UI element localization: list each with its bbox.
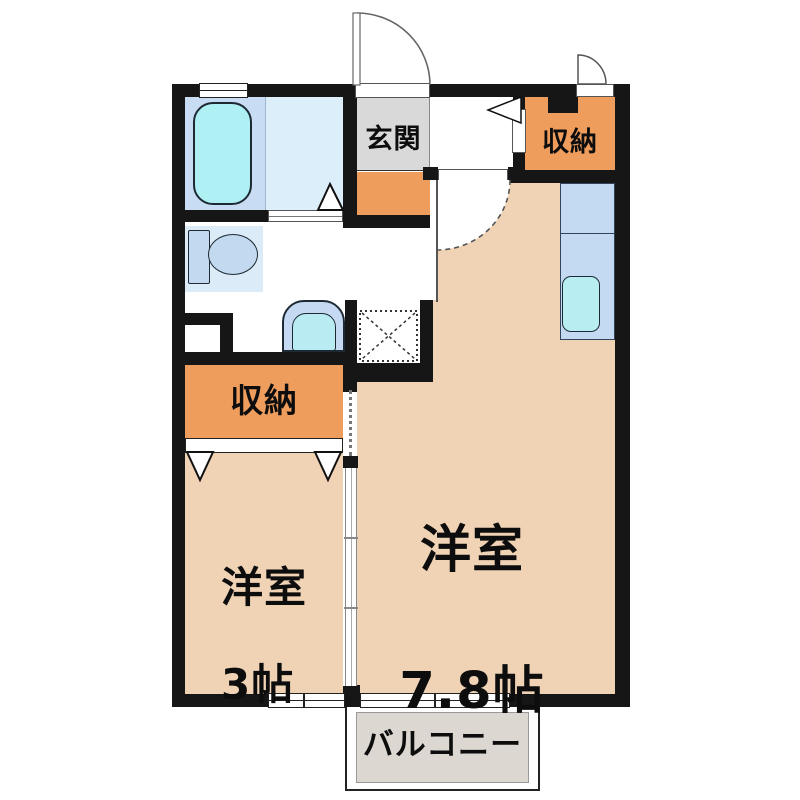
exterior-storage-door-icon [578,55,606,84]
entrance-door-arc-icon [357,13,430,85]
small-room-size: 3帖 [221,661,307,709]
entrance-door-leaf-icon [353,13,360,85]
storage-left-label: 収納 [185,382,343,421]
washing-machine-x2 [362,313,415,359]
balcony-label: バルコニー [356,727,529,764]
folding-door-triangle-icon-storage-left-2 [315,452,341,480]
main-room-size: 7.8帖 [367,657,577,727]
washing-machine-x1 [362,313,415,359]
floor-plan: 玄関 収納 収納 洋室 7.8帖 洋室 3帖 バルコニー [0,0,800,800]
main-room-name: 洋室 [367,516,577,586]
folding-door-triangle-icon-storage-left-1 [187,452,213,480]
folding-door-triangle-icon-bathroom [318,184,343,210]
small-room-label: 洋室 3帖 [221,516,307,757]
folding-door-triangle-icon-storage-tr [488,97,521,123]
storage-top-right-label: 収納 [525,127,615,159]
room-door-swing-area [437,180,510,250]
small-room-name: 洋室 [221,564,307,612]
entrance-label: 玄関 [357,124,430,156]
